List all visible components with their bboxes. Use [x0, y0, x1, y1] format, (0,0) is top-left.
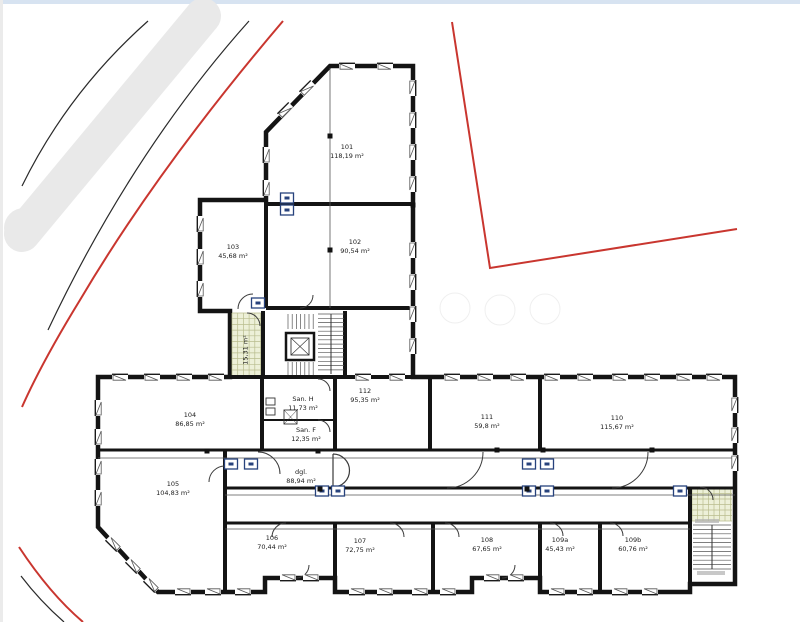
window-icon: [544, 374, 560, 381]
watermark: [440, 293, 560, 325]
floor-plan-drawing: [0, 0, 800, 622]
site-road-band: [4, 16, 203, 248]
window-icon: [612, 589, 628, 596]
room-label-san-h: San. H11,73 m²: [288, 395, 318, 413]
window-icon: [510, 374, 526, 381]
room-label-107: 10772,75 m²: [345, 537, 375, 555]
window-icon: [95, 400, 102, 416]
door-frame-box-icon: [245, 459, 258, 469]
top-edge-strip: [0, 0, 800, 4]
window-icon: [410, 306, 417, 322]
window-icon: [484, 575, 500, 582]
window-icon: [477, 374, 493, 381]
door-frame-box-icon: [281, 193, 294, 203]
window-icon: [197, 216, 204, 232]
window-icon: [642, 589, 658, 596]
door-frame-box-icon: [225, 459, 238, 469]
window-icon: [95, 429, 102, 445]
door-frame-box-icon: [281, 205, 294, 215]
window-icon: [410, 274, 417, 290]
window-icon: [732, 427, 739, 443]
room-label-san-f: San. F12,35 m²: [291, 426, 321, 444]
window-icon: [377, 63, 393, 70]
room-label-104: 10486,85 m²: [175, 411, 205, 429]
window-icon: [444, 374, 460, 381]
window-icon: [197, 281, 204, 297]
window-icon: [377, 589, 393, 596]
window-icon: [197, 249, 204, 265]
room-label-109a: 109a45,43 m²: [545, 536, 575, 554]
door-frame-box-icon: [674, 486, 687, 496]
window-icon: [349, 589, 365, 596]
window-icon: [208, 374, 224, 381]
window-icon: [577, 374, 593, 381]
room-label-102: 10290,54 m²: [340, 238, 370, 256]
room-label-101: 101118,19 m²: [330, 143, 364, 161]
room-label-corridor: dgl.88,94 m²: [286, 468, 316, 486]
door-frame-box-icon: [541, 459, 554, 469]
room-label-103: 10345,68 m²: [218, 243, 248, 261]
window-icon: [95, 459, 102, 475]
room-label-110: 110115,67 m²: [600, 414, 634, 432]
window-icon: [410, 144, 417, 160]
door-frame-box-icon: [523, 459, 536, 469]
door-frame-box-icon: [541, 486, 554, 496]
floor-plan-canvas: 101118,19 m² 10290,54 m² 10345,68 m² 104…: [0, 0, 800, 622]
window-icon: [644, 374, 660, 381]
window-icon: [676, 374, 692, 381]
window-icon: [440, 589, 456, 596]
window-icon: [175, 589, 191, 596]
room-label-111: 11159,8 m²: [474, 413, 499, 431]
room-label-112: 11295,35 m²: [350, 387, 380, 405]
window-icon: [144, 374, 160, 381]
window-icon: [706, 374, 722, 381]
window-icon: [732, 397, 739, 413]
window-icon: [389, 374, 405, 381]
window-icon: [410, 112, 417, 128]
window-icon: [410, 242, 417, 258]
window-icon: [339, 63, 355, 70]
window-icon: [412, 589, 428, 596]
stair-landing-tiles: [692, 488, 732, 521]
window-icon: [410, 80, 417, 96]
window-icon: [176, 374, 192, 381]
window-icon: [508, 575, 524, 582]
window-icon: [205, 589, 221, 596]
window-icon: [612, 374, 628, 381]
left-edge-strip: [0, 0, 3, 622]
room-label-108: 10867,65 m²: [472, 536, 502, 554]
door-frame-box-icon: [252, 298, 265, 308]
window-icon: [112, 374, 128, 381]
room-label-105: 105104,83 m²: [156, 480, 190, 498]
window-icon: [549, 589, 565, 596]
room-label-vestibule: 15,31 m²: [242, 335, 251, 365]
window-icon: [732, 455, 739, 471]
window-icon: [280, 575, 296, 582]
room-label-106: 10670,44 m²: [257, 534, 287, 552]
window-icon: [235, 589, 251, 596]
window-icon: [95, 490, 102, 506]
window-icon: [303, 575, 319, 582]
window-icon: [410, 338, 417, 354]
window-icon: [263, 180, 270, 196]
window-icon: [410, 176, 417, 192]
door-frame-box-icon: [332, 486, 345, 496]
window-icon: [577, 589, 593, 596]
window-icon: [355, 374, 371, 381]
window-icon: [263, 147, 270, 163]
room-label-109b: 109b60,76 m²: [618, 536, 648, 554]
